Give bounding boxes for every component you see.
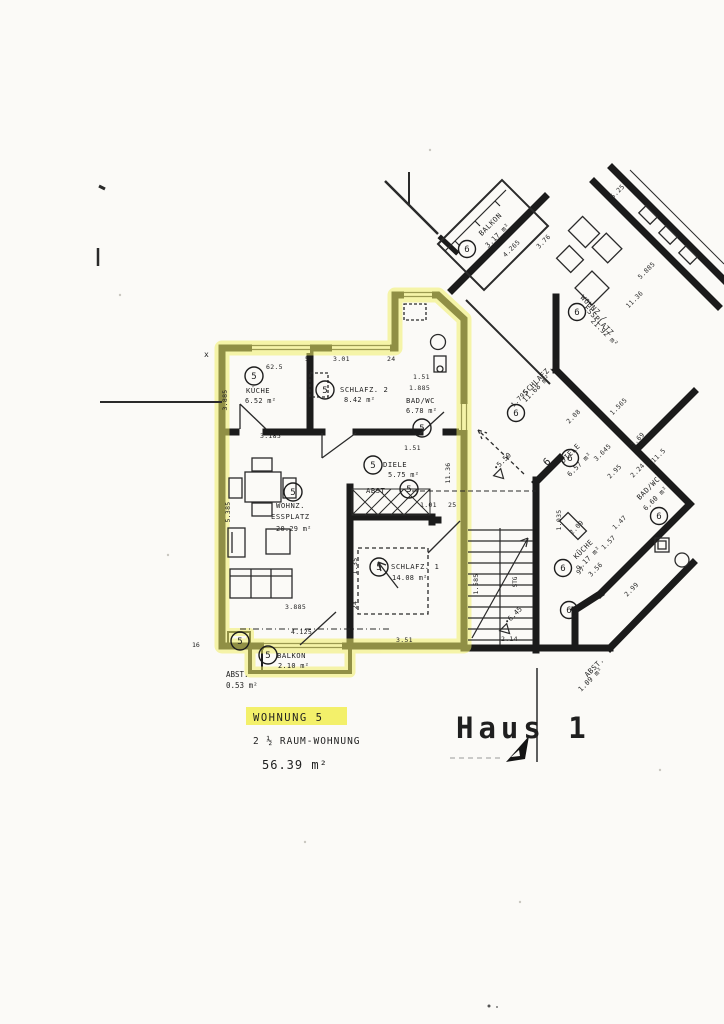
planter-boxes	[630, 170, 724, 264]
survey-x-mark: x	[204, 350, 209, 359]
wohnz-name-1: WOHNZ.	[276, 501, 305, 510]
washing-machine	[404, 304, 426, 320]
wohnung-label: WOHNUNG 5	[253, 712, 323, 724]
unit-number: 5	[370, 461, 375, 471]
dim-wohnz-bottom-a: 3.885	[285, 603, 306, 611]
apt5-highlight	[222, 295, 464, 672]
dim-edge: 2.99	[623, 581, 641, 599]
apt5-room-labels: KÜCHE 6.52 m² SCHLAFZ. 2 8.42 m² 1.51 1.…	[245, 373, 439, 670]
apt6-sofa-1	[568, 216, 599, 247]
apt6-wc	[675, 553, 689, 567]
unit-number: 6	[513, 409, 518, 419]
dim-right-lower: 1.585	[472, 573, 480, 594]
unit-number: 5	[322, 386, 327, 396]
chair-top	[252, 458, 272, 471]
dim-schlafz1-left-b: 24	[351, 601, 359, 609]
schlafz2-name: SCHLAFZ. 2	[340, 385, 388, 394]
schlafz2-area: 8.42 m²	[344, 396, 375, 404]
abst-hatch-lines	[352, 489, 430, 515]
sofa-cushion-lines	[230, 569, 292, 598]
wc-bowl	[437, 366, 443, 372]
dim-right-b: 11.5	[650, 447, 668, 465]
stairs-label: STG	[512, 576, 519, 587]
bad-dim-depth: 1.885	[409, 384, 430, 392]
upper-diagonal-line	[385, 181, 438, 234]
dim-diele6-b: 1.565	[608, 396, 629, 417]
dim-kueche6-c: 1.47	[611, 514, 629, 532]
schlafz1-door-swing	[428, 521, 460, 553]
chair-bottom	[252, 503, 272, 516]
corridor-edge-line	[466, 300, 550, 384]
floor-plan-drawing: 5 5 5 5 5 5 5 5 5 6 6 6 6 6 6 6	[0, 0, 724, 1024]
schlafz2-door-swing	[322, 433, 356, 458]
abst-hatch	[352, 489, 430, 515]
dim-left-lower: 5.385	[224, 501, 232, 522]
unit-number: 5	[265, 651, 270, 661]
speck	[519, 901, 521, 903]
dim-top-c: 24	[387, 355, 395, 363]
scanned-floor-plan-page: 5 5 5 5 5 5 5 5 5 6 6 6 6 6 6 6	[0, 0, 724, 1024]
unit-number: 5	[290, 488, 295, 498]
unit-number: 6	[656, 512, 661, 522]
speck	[496, 1006, 498, 1008]
chair-left	[229, 478, 242, 498]
unit-number: 5	[237, 637, 242, 647]
unit-number: 5	[419, 424, 424, 434]
dim-schlafz1-bottom: 3.51	[396, 636, 413, 644]
dim-stairs-bottom: 2.14	[501, 635, 518, 643]
unit-number: 5	[376, 563, 381, 573]
balkon-area: 2.10 m²	[278, 662, 309, 670]
dim-abst-b: 25	[448, 501, 456, 509]
dim-top-right-b: 5.885	[636, 260, 657, 281]
footer-block: ABST. 0.53 m² WOHNUNG 5 2 ½ RAUM-WOHNUNG…	[226, 670, 591, 772]
dim-left-upper: 3.885	[221, 389, 229, 410]
dim-wohnz-bottom-b: 4.125	[291, 628, 312, 636]
dim-top-b: 3.01	[333, 355, 350, 363]
dim-wall-1136: 11.36	[624, 289, 645, 310]
schlafz1-name: SCHLAFZ. 1	[391, 562, 439, 571]
dim-schlafz1-left-a: 1.35	[351, 558, 359, 575]
speck	[119, 294, 121, 296]
dim-diele6-a: 2.08	[565, 408, 583, 426]
kueche-area: 6.52 m²	[245, 397, 276, 405]
dim-kueche-top: 62.5	[266, 363, 283, 371]
wohnz-name-2: ESSPLATZ	[271, 512, 310, 521]
schlafz1-area: 14.08 m²	[392, 574, 428, 582]
stairwell-walls	[464, 480, 610, 650]
unit-number: 6	[464, 245, 469, 255]
apt6-sofa-2	[592, 233, 622, 263]
dim-bad6-b: 2.24	[629, 462, 647, 480]
wohnung-type: 2 ½ RAUM-WOHNUNG	[253, 736, 361, 747]
kueche-door-swing	[240, 404, 266, 429]
unit-number: 6	[574, 308, 579, 318]
stair-and-apt6-walls	[441, 168, 724, 650]
dining-table	[245, 472, 281, 502]
unit-number: 5	[406, 485, 411, 495]
abst-name: ABST.	[366, 486, 390, 495]
diele-name: DIELE	[383, 460, 407, 469]
sofa	[230, 569, 292, 598]
speck	[167, 554, 169, 556]
apt6-armchair	[557, 246, 584, 273]
washbasin	[431, 335, 446, 350]
dim-bad6-a: 2.95	[606, 463, 624, 481]
bad-area: 6.78 m²	[406, 407, 437, 415]
bad-dim-width: 1.51	[413, 373, 430, 381]
abst-balkon-name: ABST.	[226, 670, 249, 679]
dim-diele6-c: 3.645	[592, 442, 613, 463]
dim-kueche6-b: 3.56	[587, 561, 605, 579]
building-title: Haus 1	[456, 711, 591, 745]
abst-balkon-area: 0.53 m²	[226, 681, 258, 690]
speck	[488, 1005, 491, 1008]
diele-area: 5.75 m²	[388, 471, 419, 479]
balkon-name: BALKON	[277, 651, 306, 660]
dim-kueche-bottom: 3.185	[260, 432, 281, 440]
kueche-name: KÜCHE	[246, 386, 270, 395]
north-arrow-notch	[511, 750, 520, 757]
unit-number: 6	[566, 606, 571, 616]
dim-kueche6-f: 1.035	[555, 509, 563, 530]
bad-name: BAD/WC	[406, 396, 435, 405]
armchair	[228, 528, 245, 557]
dim-top-a: 5	[305, 355, 309, 363]
speck	[659, 769, 661, 771]
parcel-16: 16	[192, 641, 200, 649]
elevation-label-lower: •6.45	[503, 605, 524, 626]
speck	[429, 149, 431, 151]
wc-fixture	[434, 356, 446, 372]
dim-abst-a: 1.01	[420, 501, 437, 509]
dim-top-right-a: 5.25	[609, 183, 627, 201]
unit-number: 6	[560, 564, 565, 574]
wohnz-area: 20.29 m²	[276, 525, 312, 533]
margin-mark-1	[99, 186, 105, 189]
dim-right-mid: 11.36	[444, 462, 452, 483]
speck	[304, 841, 306, 843]
dim-kueche6-d: 1.57	[600, 534, 618, 552]
dim-diele-top: 1.51	[404, 444, 421, 452]
unit-number: 5	[251, 372, 256, 382]
apt6-shower-inner	[658, 541, 666, 549]
thin-linework	[98, 170, 724, 762]
wohnung-area: 56.39 m²	[262, 758, 328, 772]
terrace-thin-line	[630, 170, 724, 264]
